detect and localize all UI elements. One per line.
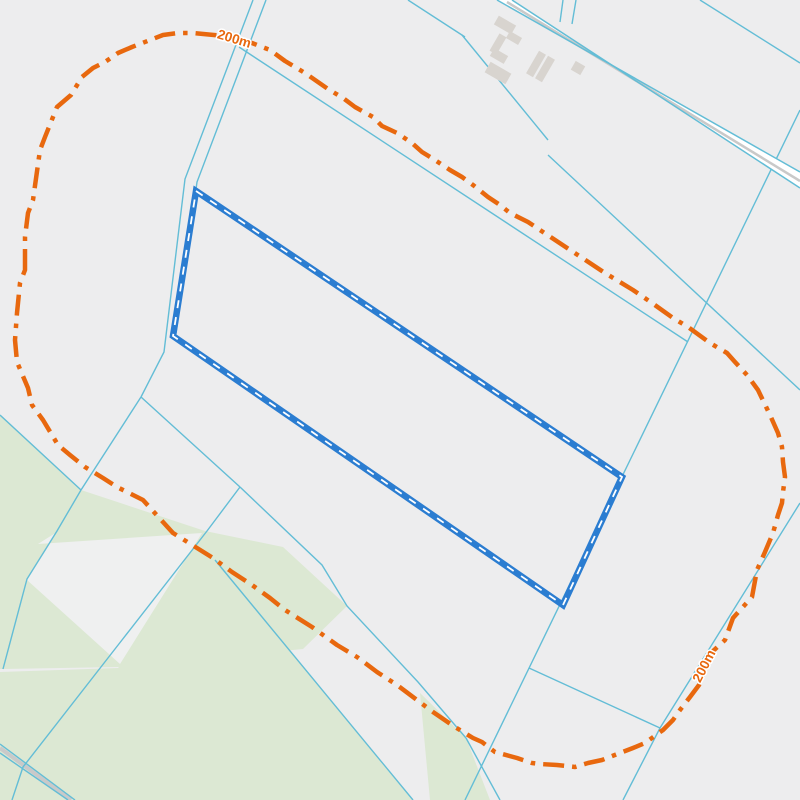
map-canvas[interactable]: 200m200m [0,0,800,800]
map-view[interactable]: 200m200m [0,0,800,800]
